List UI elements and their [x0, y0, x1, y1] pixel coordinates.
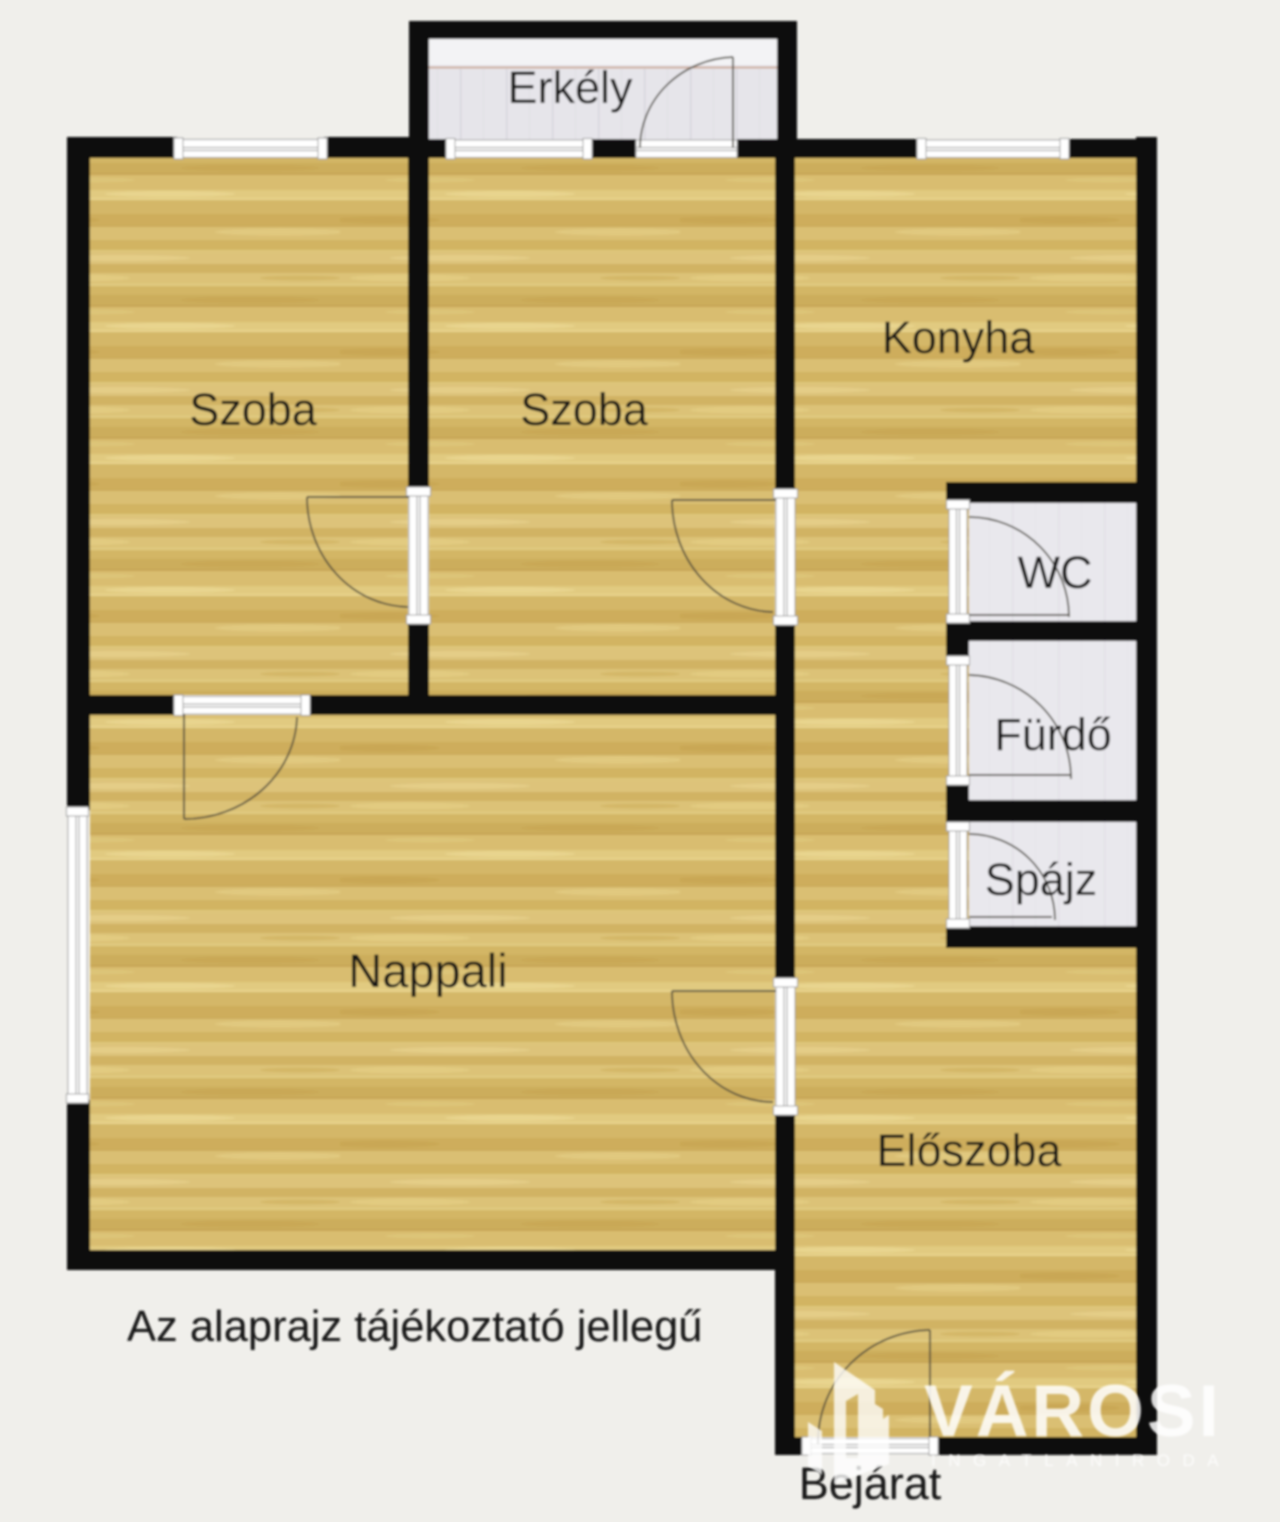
svg-text:WC: WC — [1018, 547, 1093, 598]
svg-text:Szoba: Szoba — [520, 384, 649, 435]
svg-text:Előszoba: Előszoba — [876, 1125, 1062, 1176]
svg-text:Szoba: Szoba — [189, 384, 318, 435]
svg-text:Az alaprajz tájékoztató jelleg: Az alaprajz tájékoztató jellegű — [127, 1303, 703, 1351]
svg-text:Konyha: Konyha — [882, 312, 1036, 363]
svg-text:Fürdő: Fürdő — [994, 709, 1112, 760]
svg-text:VÁROSI: VÁROSI — [924, 1371, 1222, 1452]
svg-text:Erkély: Erkély — [507, 62, 633, 113]
svg-text:INGATLANIRODA: INGATLANIRODA — [931, 1451, 1231, 1470]
svg-text:Spájz: Spájz — [985, 854, 1098, 905]
svg-text:Nappali: Nappali — [348, 944, 507, 997]
